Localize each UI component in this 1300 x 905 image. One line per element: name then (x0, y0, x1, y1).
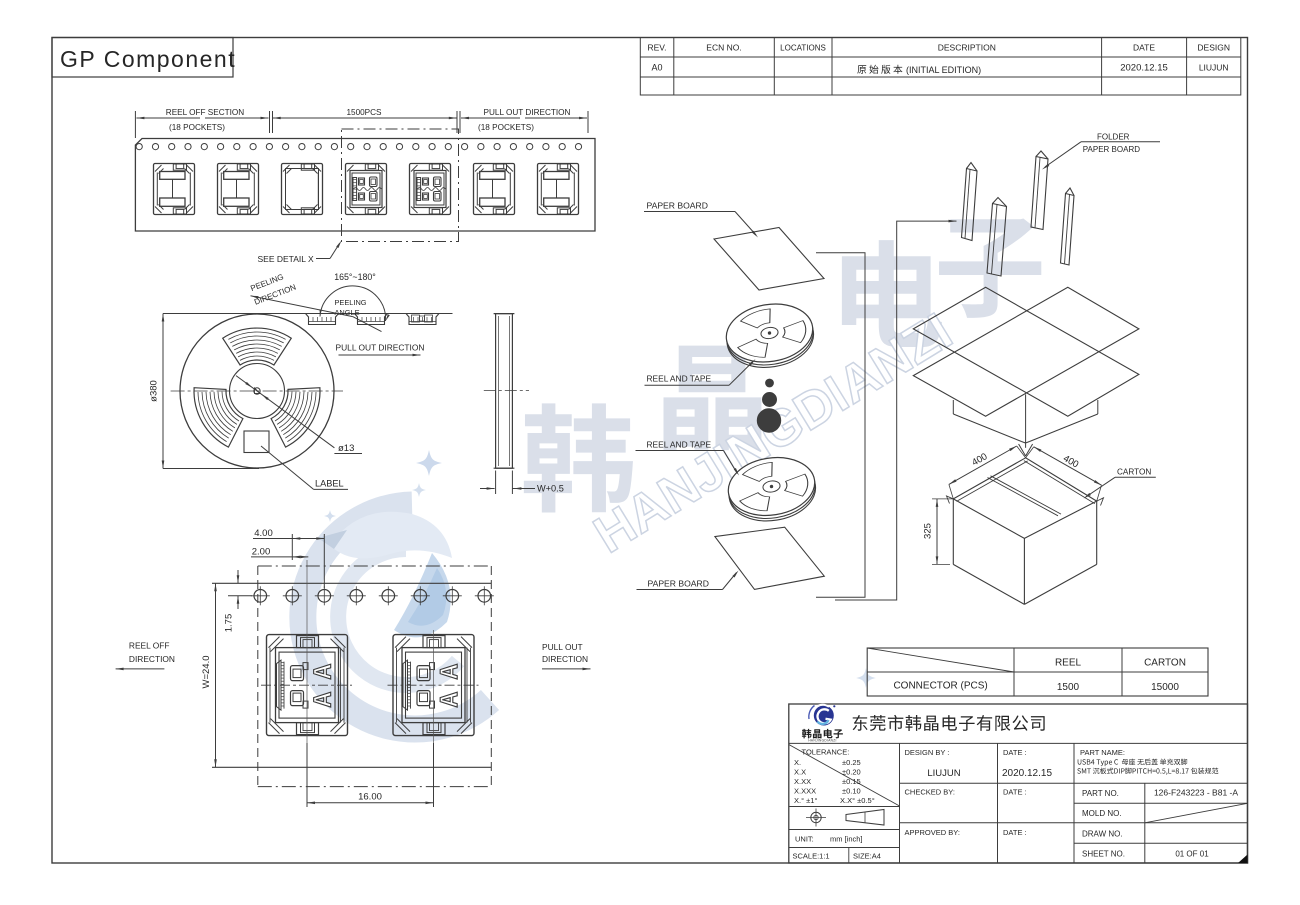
svg-text:W+0.5: W+0.5 (537, 484, 564, 494)
svg-text:DIRECTION: DIRECTION (542, 654, 588, 664)
svg-text:UNIT:: UNIT: (795, 835, 814, 844)
svg-text:REEL OFF: REEL OFF (129, 641, 170, 651)
svg-text:(INITIAL EDITION): (INITIAL EDITION) (906, 65, 981, 75)
svg-text:HANJINGDIANZI: HANJINGDIANZI (808, 738, 836, 742)
svg-text:DIRECTION: DIRECTION (129, 654, 175, 664)
svg-text:(18 POCKETS): (18 POCKETS) (169, 123, 225, 132)
svg-text:A0: A0 (651, 63, 662, 73)
svg-text:DATE :: DATE : (1003, 788, 1027, 797)
svg-text:PART NAME:: PART NAME: (1080, 748, 1125, 757)
svg-text:16.00: 16.00 (358, 792, 382, 803)
svg-text:CARTON: CARTON (1144, 658, 1186, 669)
svg-text:±0.25: ±0.25 (842, 758, 861, 767)
svg-text:GP Component: GP Component (60, 46, 236, 72)
svg-text:ECN NO.: ECN NO. (706, 43, 741, 53)
svg-text:mm [inch]: mm [inch] (830, 835, 863, 844)
svg-text:±0.20: ±0.20 (842, 768, 861, 777)
svg-text:2020.12.15: 2020.12.15 (1120, 63, 1168, 74)
svg-text:DRAW NO.: DRAW NO. (1082, 830, 1123, 839)
svg-text:SEE DETAIL X: SEE DETAIL X (258, 254, 315, 264)
svg-text:4.00: 4.00 (254, 528, 273, 539)
svg-text:2.00: 2.00 (252, 547, 271, 558)
svg-text:126-F243223 - B81 -A: 126-F243223 - B81 -A (1154, 788, 1238, 798)
svg-text:SCALE:1:1: SCALE:1:1 (793, 852, 830, 861)
svg-text:SIZE:A4: SIZE:A4 (853, 852, 881, 861)
svg-text:X.XX: X.XX (794, 777, 811, 786)
svg-text:FOLDER: FOLDER (1097, 133, 1130, 142)
svg-text:DATE: DATE (1133, 43, 1155, 53)
svg-text:LIUJUN: LIUJUN (1199, 63, 1229, 73)
svg-text:PULL OUT: PULL OUT (542, 642, 583, 652)
svg-text:PEELING: PEELING (335, 298, 367, 307)
svg-text:PULL OUT DIRECTION: PULL OUT DIRECTION (336, 343, 425, 353)
svg-text:REEL AND TAPE: REEL AND TAPE (647, 440, 712, 450)
svg-text:LABEL: LABEL (315, 479, 344, 489)
svg-text:REEL OFF SECTION: REEL OFF SECTION (166, 108, 244, 117)
svg-text:LOCATIONS: LOCATIONS (780, 44, 826, 53)
svg-text:1500PCS: 1500PCS (346, 108, 382, 117)
svg-text:±0.10: ±0.10 (842, 787, 861, 796)
svg-text:PAPER BOARD: PAPER BOARD (648, 579, 709, 589)
svg-text:REV.: REV. (647, 43, 666, 53)
svg-text:15000: 15000 (1151, 682, 1179, 693)
svg-text:PAPER BOARD: PAPER BOARD (647, 201, 708, 211)
svg-text:DATE :: DATE : (1003, 748, 1027, 757)
svg-text:REEL: REEL (1055, 658, 1082, 669)
svg-text:(18 POCKETS): (18 POCKETS) (478, 123, 534, 132)
svg-text:1500: 1500 (1057, 682, 1080, 693)
svg-text:REEL AND TAPE: REEL AND TAPE (647, 374, 712, 384)
svg-text:MOLD NO.: MOLD NO. (1082, 809, 1122, 818)
svg-text:DESCRIPTION: DESCRIPTION (938, 43, 996, 53)
svg-text:PAPER BOARD: PAPER BOARD (1083, 145, 1140, 154)
svg-text:LIUJUN: LIUJUN (927, 768, 960, 779)
svg-text:DESIGN: DESIGN (1197, 43, 1230, 53)
svg-text:X.° ±1°: X.° ±1° (794, 796, 817, 805)
svg-text:APPROVED BY:: APPROVED BY: (905, 828, 960, 837)
svg-text:X.: X. (794, 758, 801, 767)
svg-text:ø13: ø13 (338, 443, 354, 454)
svg-text:165°~180°: 165°~180° (334, 272, 376, 282)
svg-text:X.X: X.X (794, 768, 806, 777)
svg-text:325: 325 (923, 523, 934, 539)
svg-text:DATE :: DATE : (1003, 828, 1027, 837)
svg-text:CARTON: CARTON (1117, 468, 1151, 477)
svg-text:TOLERANCE:: TOLERANCE: (802, 748, 850, 757)
svg-text:W=24.0: W=24.0 (201, 655, 212, 688)
svg-text:X.X° ±0.5°: X.X° ±0.5° (840, 796, 875, 805)
svg-text:X.XXX: X.XXX (794, 787, 816, 796)
svg-text:1.75: 1.75 (224, 614, 235, 633)
svg-text:2020.12.15: 2020.12.15 (1002, 768, 1052, 779)
svg-text:01 OF 01: 01 OF 01 (1175, 850, 1209, 859)
svg-text:±0.15: ±0.15 (842, 777, 861, 786)
svg-text:ø380: ø380 (149, 380, 160, 402)
svg-text:PART NO.: PART NO. (1082, 789, 1119, 798)
svg-text:SHEET NO.: SHEET NO. (1082, 850, 1125, 859)
svg-text:PULL OUT DIRECTION: PULL OUT DIRECTION (484, 108, 571, 117)
svg-text:DESIGN BY :: DESIGN BY : (905, 748, 950, 757)
svg-text:CHECKED BY:: CHECKED BY: (905, 788, 955, 797)
svg-text:CONNECTOR (PCS): CONNECTOR (PCS) (893, 681, 987, 692)
